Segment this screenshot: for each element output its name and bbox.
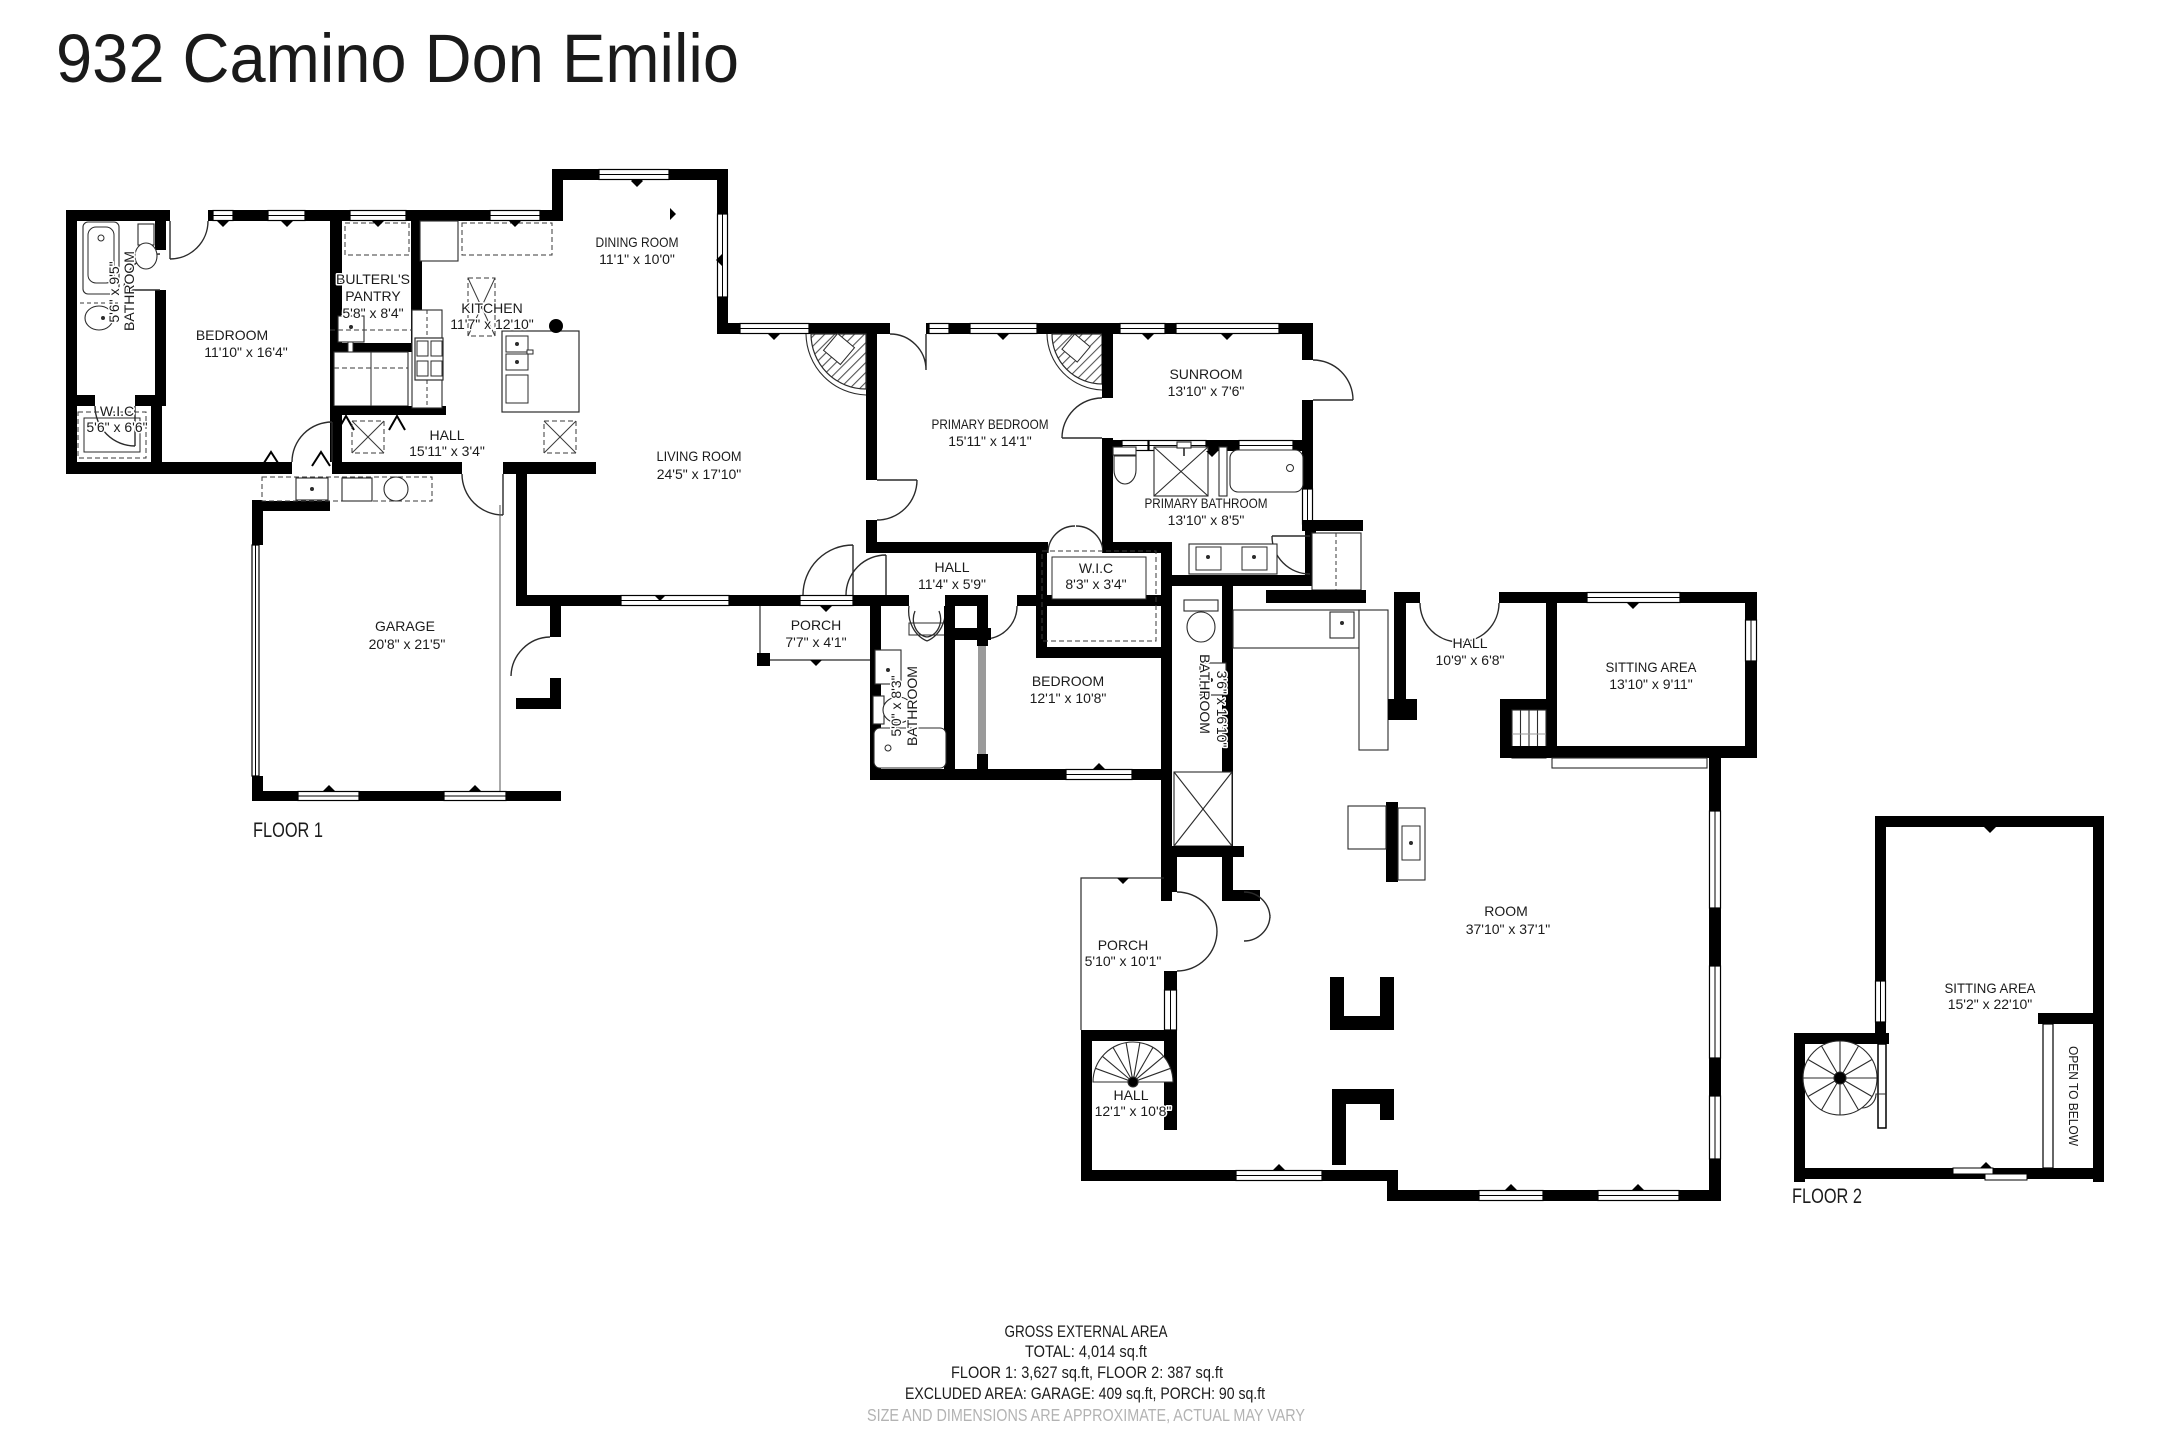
- svg-text:SITTING AREA: SITTING AREA: [1606, 659, 1698, 675]
- svg-text:KITCHEN: KITCHEN: [461, 300, 522, 316]
- svg-text:PORCH: PORCH: [1098, 937, 1149, 953]
- svg-text:LIVING ROOM: LIVING ROOM: [657, 448, 742, 464]
- svg-text:OPEN TO BELOW: OPEN TO BELOW: [2066, 1046, 2081, 1147]
- svg-text:HALL: HALL: [934, 559, 969, 575]
- svg-text:3'6" x 16'10": 3'6" x 16'10": [1214, 671, 1230, 748]
- svg-text:15'11" x 14'1": 15'11" x 14'1": [948, 433, 1032, 449]
- svg-text:PORCH: PORCH: [791, 617, 842, 633]
- svg-text:EXCLUDED AREA: GARAGE: 409 sq.: EXCLUDED AREA: GARAGE: 409 sq.ft, PORCH:…: [905, 1384, 1265, 1403]
- svg-text:11'1" x 10'0": 11'1" x 10'0": [599, 251, 675, 267]
- svg-text:12'1" x 10'8": 12'1" x 10'8": [1095, 1103, 1172, 1119]
- svg-text:13'10" x 9'11": 13'10" x 9'11": [1609, 676, 1693, 692]
- svg-text:GROSS EXTERNAL AREA: GROSS EXTERNAL AREA: [1005, 1322, 1169, 1341]
- svg-text:TOTAL: 4,014 sq.ft: TOTAL: 4,014 sq.ft: [1025, 1342, 1147, 1361]
- svg-text:20'8" x 21'5": 20'8" x 21'5": [369, 636, 446, 652]
- svg-text:PRIMARY BATHROOM: PRIMARY BATHROOM: [1145, 495, 1268, 511]
- svg-text:7'7" x 4'1": 7'7" x 4'1": [785, 634, 846, 650]
- svg-text:SITTING AREA: SITTING AREA: [1945, 980, 2037, 996]
- svg-text:W.I.C: W.I.C: [100, 403, 134, 419]
- svg-text:BULTERL'S: BULTERL'S: [336, 271, 410, 287]
- svg-text:5'8" x 8'4": 5'8" x 8'4": [342, 305, 403, 321]
- svg-text:GARAGE: GARAGE: [375, 618, 435, 634]
- svg-text:5'6" x 9'5": 5'6" x 9'5": [106, 261, 122, 322]
- svg-text:24'5" x 17'10": 24'5" x 17'10": [657, 466, 742, 482]
- svg-text:SIZE AND DIMENSIONS ARE APPROX: SIZE AND DIMENSIONS ARE APPROXIMATE, ACT…: [867, 1405, 1305, 1425]
- svg-text:FLOOR 2: FLOOR 2: [1792, 1185, 1862, 1208]
- svg-text:11'4" x 5'9": 11'4" x 5'9": [918, 576, 986, 592]
- svg-text:BATHROOM: BATHROOM: [904, 666, 920, 746]
- svg-text:BEDROOM: BEDROOM: [1032, 673, 1104, 689]
- svg-text:FLOOR 1: 3,627 sq.ft, FLOOR 2:: FLOOR 1: 3,627 sq.ft, FLOOR 2: 387 sq.ft: [951, 1363, 1223, 1382]
- svg-text:15'2" x 22'10": 15'2" x 22'10": [1948, 996, 2033, 1012]
- svg-text:8'3" x 3'4": 8'3" x 3'4": [1065, 576, 1126, 592]
- svg-text:HALL: HALL: [429, 427, 464, 443]
- svg-text:ROOM: ROOM: [1484, 903, 1528, 919]
- svg-text:BATHROOM: BATHROOM: [1197, 654, 1213, 734]
- svg-text:BEDROOM: BEDROOM: [196, 327, 268, 343]
- svg-text:37'10" x 37'1": 37'10" x 37'1": [1466, 921, 1551, 937]
- svg-text:PRIMARY BEDROOM: PRIMARY BEDROOM: [932, 416, 1049, 432]
- svg-text:12'1" x 10'8": 12'1" x 10'8": [1030, 690, 1107, 706]
- svg-text:13'10" x 7'6": 13'10" x 7'6": [1168, 383, 1245, 399]
- svg-text:FLOOR 1: FLOOR 1: [253, 819, 323, 842]
- svg-text:5'10" x 10'1": 5'10" x 10'1": [1085, 953, 1162, 969]
- svg-text:W.I.C: W.I.C: [1079, 560, 1113, 576]
- svg-text:SUNROOM: SUNROOM: [1169, 366, 1242, 382]
- svg-text:PANTRY: PANTRY: [345, 288, 401, 304]
- svg-text:5'0" x 8'3": 5'0" x 8'3": [888, 675, 904, 736]
- svg-text:11'10" x 16'4": 11'10" x 16'4": [204, 344, 288, 360]
- svg-text:BATHROOM: BATHROOM: [121, 251, 137, 331]
- svg-text:932 Camino Don Emilio: 932 Camino Don Emilio: [56, 20, 739, 97]
- svg-text:11'7" x 12'10": 11'7" x 12'10": [450, 316, 534, 332]
- svg-text:5'6" x 6'6": 5'6" x 6'6": [86, 419, 147, 435]
- svg-text:HALL: HALL: [1452, 635, 1487, 651]
- svg-text:HALL: HALL: [1113, 1087, 1148, 1103]
- svg-text:13'10" x 8'5": 13'10" x 8'5": [1168, 512, 1245, 528]
- svg-text:15'11" x 3'4": 15'11" x 3'4": [409, 443, 485, 459]
- svg-text:10'9" x 6'8": 10'9" x 6'8": [1436, 652, 1505, 668]
- svg-text:DINING ROOM: DINING ROOM: [596, 234, 679, 250]
